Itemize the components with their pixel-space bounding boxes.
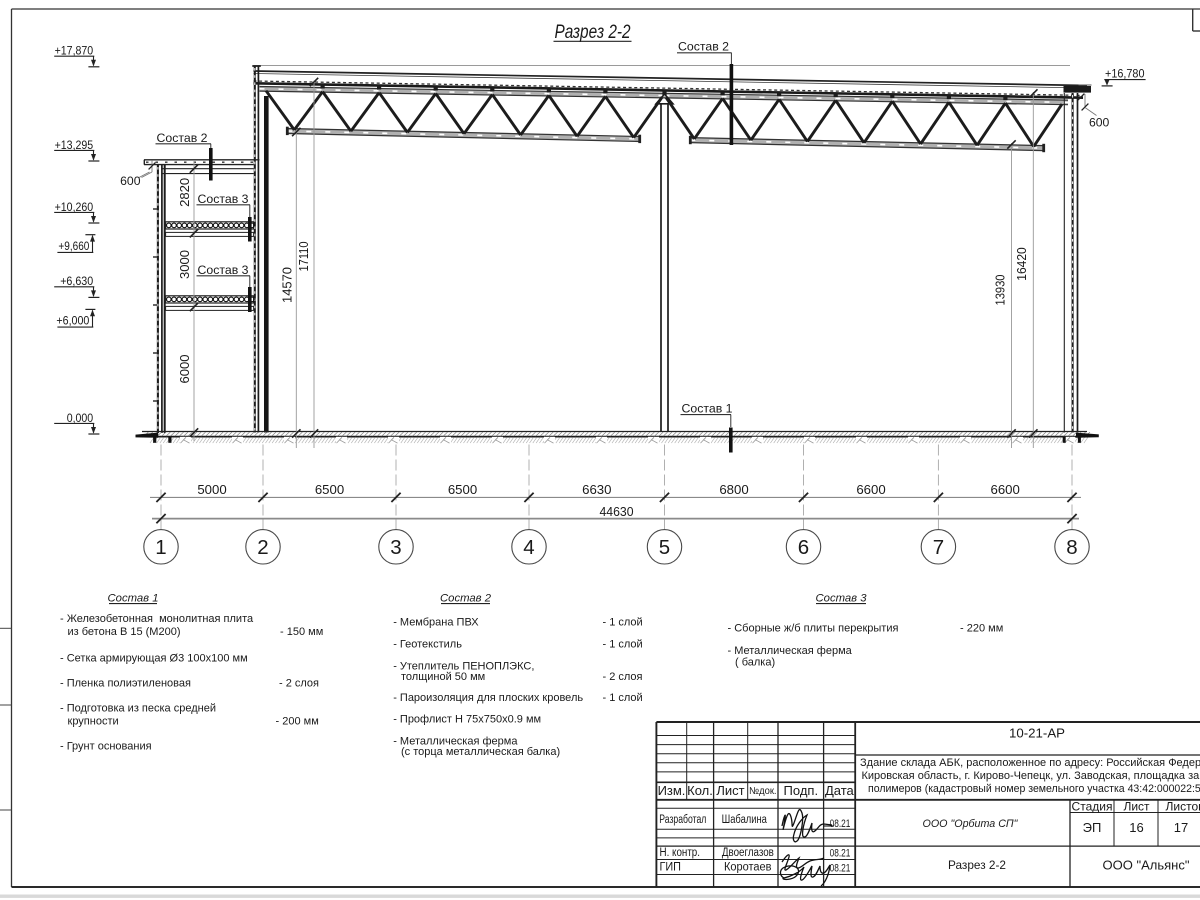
svg-text:600: 600 — [120, 174, 141, 188]
svg-text:+6,000: +6,000 — [56, 314, 89, 328]
svg-text:- Подготовка из песка средней: - Подготовка из песка средней — [60, 703, 216, 715]
svg-text:Разрез 2-2: Разрез 2-2 — [948, 858, 1006, 872]
svg-text:+13,295: +13,295 — [55, 138, 94, 152]
svg-text:ГИП: ГИП — [660, 862, 682, 874]
svg-text:10-21-АР: 10-21-АР — [1009, 726, 1065, 741]
svg-text:2: 2 — [257, 536, 268, 559]
svg-text:1: 1 — [155, 536, 166, 559]
svg-text:Разрез 2-2: Разрез 2-2 — [555, 21, 631, 43]
svg-text:44630: 44630 — [600, 504, 634, 519]
svg-text:17110: 17110 — [296, 242, 311, 272]
svg-text:- 150 мм: - 150 мм — [280, 626, 323, 638]
svg-text:5: 5 — [659, 536, 670, 559]
svg-text:- 220 мм: - 220 мм — [960, 623, 1003, 635]
svg-text:Здание склада АБК, расположенн: Здание склада АБК, расположенное по адре… — [860, 757, 1200, 769]
svg-text:600: 600 — [1089, 116, 1110, 130]
svg-text:- Пароизоляция для плоских кро: - Пароизоляция для плоских кровель — [393, 692, 583, 704]
svg-text:ЭП: ЭП — [1083, 820, 1102, 835]
svg-text:№док.: №док. — [749, 786, 777, 797]
svg-text:Н. контр.: Н. контр. — [660, 847, 701, 859]
svg-text:- 1 слой: - 1 слой — [603, 692, 643, 704]
svg-text:- Мембрана ПВХ: - Мембрана ПВХ — [393, 617, 479, 629]
svg-text:- Геотекстиль: - Геотекстиль — [393, 639, 462, 651]
svg-text:- 2 слоя: - 2 слоя — [603, 671, 643, 683]
svg-text:Листов: Листов — [1166, 800, 1200, 814]
svg-text:Состав 1: Состав 1 — [682, 402, 733, 416]
svg-text:0,000: 0,000 — [67, 411, 94, 425]
svg-text:ООО "Альянс": ООО "Альянс" — [1103, 858, 1190, 873]
svg-text:Разработал: Разработал — [659, 814, 706, 826]
svg-text:полимеров (кадастровый номер з: полимеров (кадастровый номер земельного … — [868, 783, 1200, 795]
svg-text:- 1 слой: - 1 слой — [603, 617, 643, 629]
svg-text:Состав 2: Состав 2 — [440, 592, 492, 604]
svg-text:08.21: 08.21 — [830, 848, 851, 860]
svg-text:6630: 6630 — [582, 482, 611, 497]
svg-text:Состав 3: Состав 3 — [198, 192, 249, 206]
svg-text:Стадия: Стадия — [1072, 800, 1113, 814]
svg-text:13930: 13930 — [993, 275, 1008, 306]
svg-text:Дата: Дата — [825, 783, 855, 798]
svg-text:6000: 6000 — [177, 355, 192, 384]
svg-text:08.21: 08.21 — [830, 818, 851, 830]
svg-text:08.21: 08.21 — [830, 863, 851, 875]
svg-text:+17,870: +17,870 — [55, 44, 94, 58]
svg-text:- 2 слоя: - 2 слоя — [279, 678, 319, 690]
svg-text:Кировская область, г. Кирово-Ч: Кировская область, г. Кирово-Чепецк, ул.… — [862, 770, 1200, 782]
svg-text:6: 6 — [798, 536, 809, 559]
svg-text:Лист: Лист — [1123, 800, 1150, 814]
svg-text:14570: 14570 — [279, 267, 294, 303]
svg-text:толщиной 50 мм: толщиной 50 мм — [401, 671, 485, 683]
svg-text:- Металлическая ферма: - Металлическая ферма — [728, 645, 853, 657]
svg-text:- Пленка полиэтиленовая: - Пленка полиэтиленовая — [60, 678, 191, 690]
svg-text:(с торца металлическая балка): (с торца металлическая балка) — [401, 746, 560, 758]
svg-text:Состав 1: Состав 1 — [108, 592, 159, 604]
svg-text:3000: 3000 — [177, 250, 192, 279]
svg-text:( балка): ( балка) — [735, 657, 775, 669]
svg-text:8: 8 — [1066, 536, 1077, 559]
svg-text:ООО "Орбита СП": ООО "Орбита СП" — [923, 818, 1019, 830]
svg-text:+6,630: +6,630 — [60, 274, 93, 288]
svg-text:6800: 6800 — [719, 482, 748, 497]
svg-text:- Сборные ж/б плиты перекрытия: - Сборные ж/б плиты перекрытия — [728, 623, 899, 635]
svg-text:2820: 2820 — [177, 178, 192, 207]
svg-text:Изм.: Изм. — [658, 783, 686, 798]
svg-text:- Профлист Н 75х750х0.9 мм: - Профлист Н 75х750х0.9 мм — [393, 714, 541, 726]
svg-text:Состав 3: Состав 3 — [198, 263, 249, 277]
svg-text:6500: 6500 — [448, 482, 477, 497]
svg-text:- Грунт основания: - Грунт основания — [60, 741, 152, 753]
svg-text:6500: 6500 — [315, 482, 344, 497]
svg-text:6600: 6600 — [856, 482, 885, 497]
svg-text:крупности: крупности — [68, 716, 119, 728]
svg-text:Двоеглазов: Двоеглазов — [722, 847, 774, 859]
svg-text:17: 17 — [1174, 820, 1188, 835]
svg-text:из бетона В 15 (М200): из бетона В 15 (М200) — [68, 626, 181, 638]
svg-text:Кол.: Кол. — [687, 783, 713, 798]
svg-text:Состав 3: Состав 3 — [816, 592, 868, 604]
svg-text:Коротаев: Коротаев — [724, 862, 772, 874]
svg-text:5000: 5000 — [197, 482, 226, 497]
svg-text:7: 7 — [933, 536, 944, 559]
svg-text:- 1 слой: - 1 слой — [603, 639, 643, 651]
svg-text:Состав 2: Состав 2 — [157, 131, 208, 145]
svg-text:4: 4 — [523, 536, 534, 559]
svg-text:- Сетка армирующая Ø3 100x100: - Сетка армирующая Ø3 100x100 мм — [60, 653, 248, 665]
svg-text:- 200 мм: - 200 мм — [276, 716, 319, 728]
svg-text:Лист: Лист — [716, 783, 744, 798]
svg-text:+9,660: +9,660 — [58, 239, 89, 253]
svg-text:6600: 6600 — [991, 482, 1020, 497]
svg-text:Шабалина: Шабалина — [722, 814, 768, 826]
svg-text:Состав 2: Состав 2 — [678, 40, 729, 54]
svg-text:16: 16 — [1129, 820, 1143, 835]
svg-text:16420: 16420 — [1014, 247, 1029, 281]
svg-text:3: 3 — [390, 536, 401, 559]
svg-text:Подп.: Подп. — [784, 783, 819, 798]
svg-text:- Железобетонная монолитная п: - Железобетонная монолитная плита — [60, 613, 254, 625]
svg-text:+10,260: +10,260 — [55, 200, 94, 214]
svg-text:+16,780: +16,780 — [1105, 67, 1145, 81]
